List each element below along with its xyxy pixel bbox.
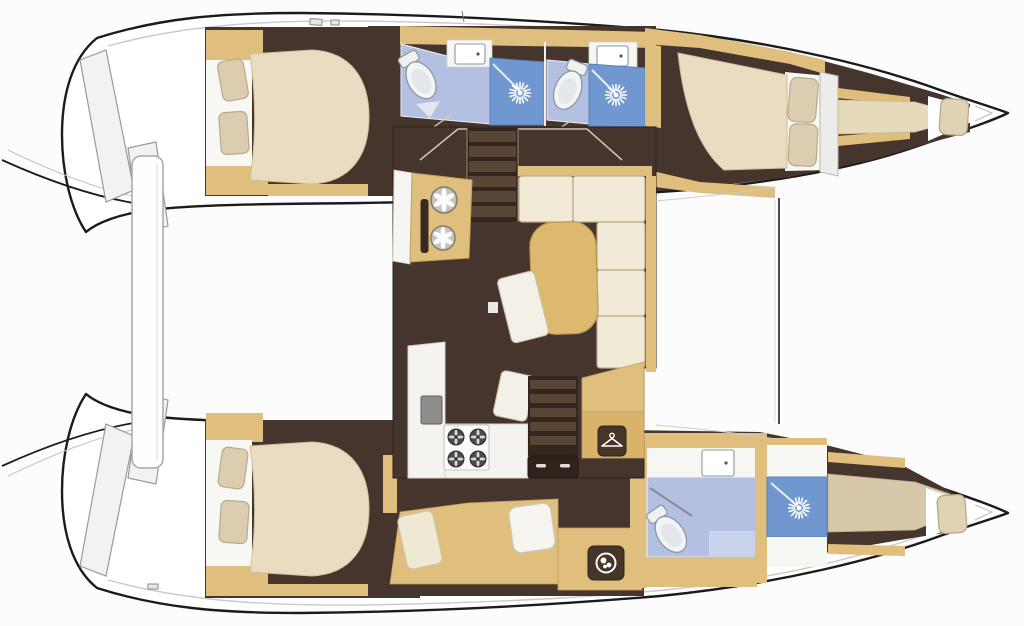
floor-plan-svg — [0, 0, 1024, 626]
cushion — [597, 316, 645, 368]
side-deck-lines — [656, 187, 776, 439]
pillow — [508, 502, 556, 553]
pillow — [937, 494, 968, 534]
cabinet — [647, 557, 757, 587]
forward-crossbeam — [775, 198, 779, 424]
cushion — [597, 270, 645, 316]
settee-back — [518, 166, 652, 176]
floor-hatch — [488, 302, 498, 313]
faucet — [724, 461, 727, 464]
pillow — [788, 123, 818, 166]
hatch — [528, 456, 578, 478]
faucet — [476, 52, 479, 55]
double-bed — [250, 442, 369, 576]
handle — [560, 464, 570, 468]
cushion — [573, 176, 645, 222]
pillow — [219, 500, 250, 544]
handle — [536, 464, 546, 468]
catamaran-floor-plan — [0, 0, 1024, 626]
counter — [767, 537, 827, 567]
salon — [393, 101, 656, 478]
wardrobe-cabinet — [582, 362, 644, 458]
companionway-stairs-bottom — [528, 376, 578, 478]
fiddle-rail — [421, 199, 429, 253]
companionway-stairs-top — [467, 128, 518, 222]
shower-sunburst-icon — [789, 498, 810, 519]
pillow — [939, 98, 969, 136]
galley-forward-counter — [393, 170, 472, 264]
settee-back — [646, 176, 656, 372]
hanger-icon — [598, 426, 626, 456]
counter-band — [647, 433, 757, 448]
head-floor-step — [710, 532, 760, 557]
counter — [767, 445, 827, 477]
cushion — [597, 222, 645, 270]
sink-icon — [702, 450, 734, 476]
shelf-band — [828, 544, 905, 556]
round-sink-icon — [431, 187, 457, 213]
stove-icon — [444, 425, 489, 470]
sink-icon — [455, 44, 485, 64]
pillow — [219, 111, 250, 155]
sink-icon — [597, 46, 628, 66]
pillow — [217, 446, 248, 489]
sink-icon — [421, 396, 442, 424]
cushion — [519, 176, 573, 222]
washing-machine-icon — [588, 546, 624, 580]
shower-sunburst-icon — [606, 85, 627, 106]
counter-edge — [393, 170, 412, 264]
shelf — [268, 184, 368, 196]
bulkhead — [820, 72, 838, 176]
double-bed — [250, 50, 369, 184]
shower-sunburst-icon — [510, 83, 531, 104]
faucet — [619, 54, 622, 57]
shelf — [268, 584, 368, 596]
cabinet — [206, 413, 263, 442]
wardrobe-cabinet — [645, 44, 661, 128]
head-bottom — [630, 433, 827, 588]
aft-crossbeam — [132, 156, 163, 468]
pillow — [787, 77, 819, 123]
round-sink-icon — [431, 226, 455, 250]
wall — [755, 433, 767, 583]
